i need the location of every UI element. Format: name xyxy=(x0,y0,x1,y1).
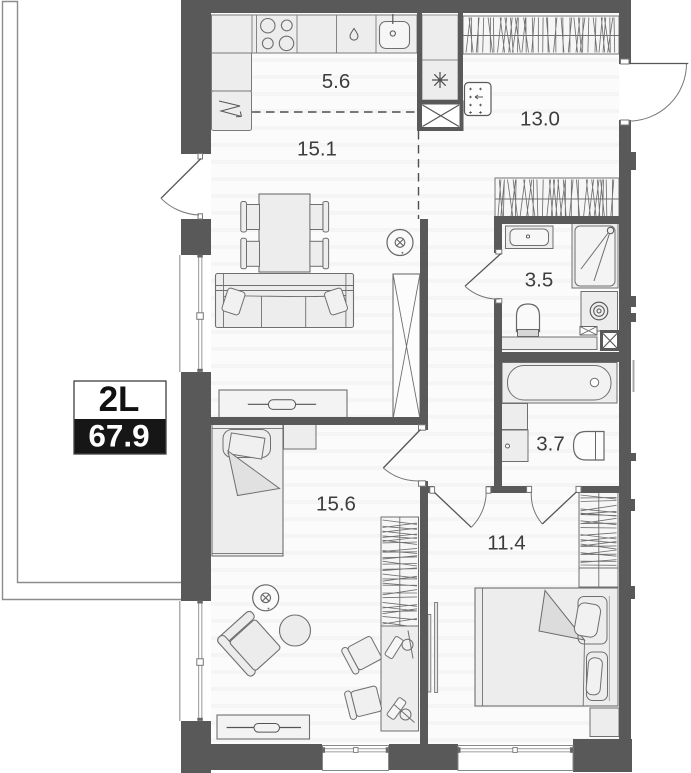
svg-text:5.6: 5.6 xyxy=(322,70,351,93)
svg-text:15.6: 15.6 xyxy=(316,493,356,516)
svg-text:15.1: 15.1 xyxy=(297,138,337,161)
svg-text:11.4: 11.4 xyxy=(487,532,525,555)
svg-text:3.5: 3.5 xyxy=(525,269,554,292)
svg-text:67.9: 67.9 xyxy=(88,418,149,454)
svg-text:13.0: 13.0 xyxy=(520,108,560,131)
svg-text:3.7: 3.7 xyxy=(536,433,565,456)
svg-text:2L: 2L xyxy=(99,380,140,419)
